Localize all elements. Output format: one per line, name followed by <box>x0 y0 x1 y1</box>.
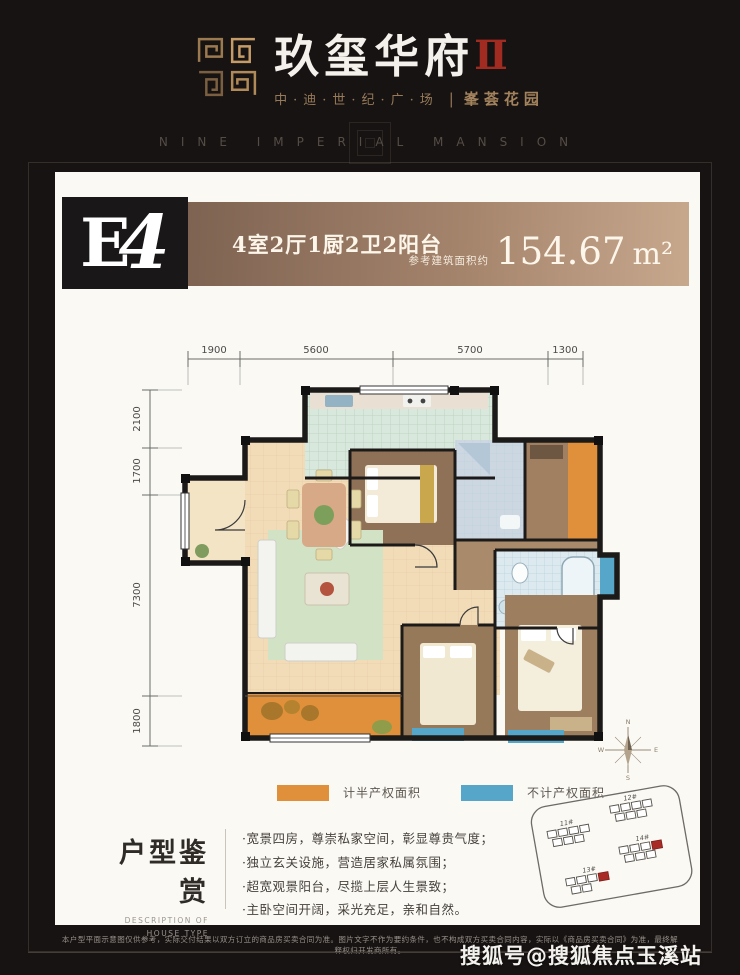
compass-n: N <box>626 718 631 726</box>
unit-code-number: 4 <box>118 206 170 280</box>
keyplan-highlight-unit-2 <box>651 840 662 850</box>
brand-subtitle-right: 峯荟花园 <box>464 88 544 109</box>
feature-item: ·宽景四房，尊崇私家空间，彰显尊贵气度； <box>242 827 493 851</box>
unit-code-badge: E 4 <box>62 197 188 289</box>
dim-top-3: 5700 <box>457 345 482 356</box>
legend-swatch-orange <box>277 785 329 801</box>
header: 玖玺华府 Ⅱ 中·迪·世·纪·广·场 | 峯荟花园 NINE IMPERIAL … <box>0 0 740 172</box>
site-key-plan: 11# 12# 13# 14# <box>517 784 702 924</box>
area-unit: m² <box>633 240 673 270</box>
brand-subtitle-left: 中·迪·世·纪·广·场 <box>274 89 439 108</box>
keyplan-bldg-11: 11# <box>559 818 574 828</box>
poster: 玖玺华府 Ⅱ 中·迪·世·纪·广·场 | 峯荟花园 NINE IMPERIAL … <box>0 0 740 975</box>
brand-title: 玖玺华府 <box>274 34 474 79</box>
stove <box>403 395 431 407</box>
dim-left-4: 1800 <box>132 708 143 733</box>
entry-hall <box>185 478 245 563</box>
dim-left-3: 7300 <box>132 582 143 607</box>
sofa <box>258 540 276 638</box>
feature-item: ·主卧空间开阔，采光充足，亲和自然。 <box>242 898 493 922</box>
kitchen-sink <box>325 395 353 407</box>
compass-w: W <box>598 746 605 754</box>
area-prefix: 参考建筑面积约 <box>409 253 490 268</box>
desk <box>530 445 563 459</box>
unit-summary-bar: 4室2厅1厨2卫2阳台 参考建筑面积约 154.67 m² <box>188 202 689 286</box>
feature-item: ·超宽观景阳台，尽揽上层人生景致； <box>242 875 493 899</box>
keyplan-bldg-13: 13# <box>582 865 597 875</box>
keyplan-bldg-14: 14# <box>635 833 650 843</box>
study-balcony <box>568 440 600 540</box>
feature-item: ·独立玄关设施，营造居家私属氛围； <box>242 851 493 875</box>
compass-icon: N E S W <box>598 718 658 780</box>
floorplan-drawing: 1900 5600 5700 1300 2100 1700 <box>120 325 660 780</box>
description-title: 户型鉴赏 <box>91 831 209 909</box>
unit-card: E 4 4室2厅1厨2卫2阳台 参考建筑面积约 154.67 m² <box>55 172 700 925</box>
rug <box>550 717 592 731</box>
watermark-text: 搜狐号@搜狐焦点玉溪站 <box>460 940 702 970</box>
brand-logo-icon <box>196 36 258 98</box>
dim-top-2: 5600 <box>303 345 328 356</box>
feature-list: ·宽景四房，尊崇私家空间，彰显尊贵气度； ·独立玄关设施，营造居家私属氛围； ·… <box>242 827 493 922</box>
subtitle-divider: | <box>449 90 454 108</box>
keyplan-highlight-unit-1 <box>598 872 609 882</box>
keyplan-bldg-12: 12# <box>623 792 638 802</box>
area-value: 154.67 <box>496 233 625 270</box>
dim-left-2: 1700 <box>132 458 143 483</box>
vertical-divider <box>225 829 226 909</box>
legend-label-orange: 计半产权面积 <box>343 784 421 801</box>
dimension-chain-top <box>188 351 583 385</box>
footer: 本户型平面示意图仅供参考，实际交付结果以双方订立的商品房买卖合同为准。图片文字不… <box>0 925 740 975</box>
dimension-chain-left <box>142 390 182 746</box>
dim-top-4: 1300 <box>552 345 577 356</box>
compass-e: E <box>654 746 658 754</box>
house-type-description: 户型鉴赏 DESCRIPTION OF HOUSE TYPE ·宽景四房，尊崇私… <box>91 827 521 941</box>
dim-top-1: 1900 <box>201 345 226 356</box>
legend-swatch-blue <box>461 785 513 801</box>
dim-left-1: 2100 <box>132 406 143 431</box>
compass-s: S <box>626 774 630 780</box>
brand-tagline: NINE IMPERIAL MANSION <box>0 122 740 149</box>
toilet <box>512 563 528 583</box>
brand-title-suffix: Ⅱ <box>474 36 508 76</box>
